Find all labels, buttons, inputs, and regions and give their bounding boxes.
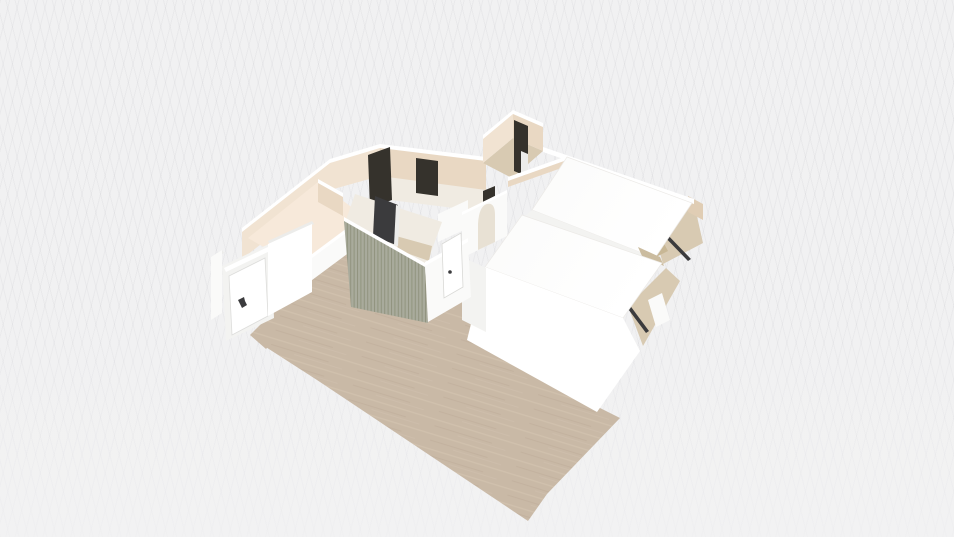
closet-white-door xyxy=(442,233,463,298)
stub-wall xyxy=(211,250,222,320)
closet-door-handle xyxy=(448,270,452,274)
arched-opening xyxy=(478,204,495,250)
dark-doorway-middle xyxy=(416,158,438,196)
floorplan-canvas xyxy=(0,0,954,537)
floorplan-3d-viewport[interactable] xyxy=(0,0,954,537)
